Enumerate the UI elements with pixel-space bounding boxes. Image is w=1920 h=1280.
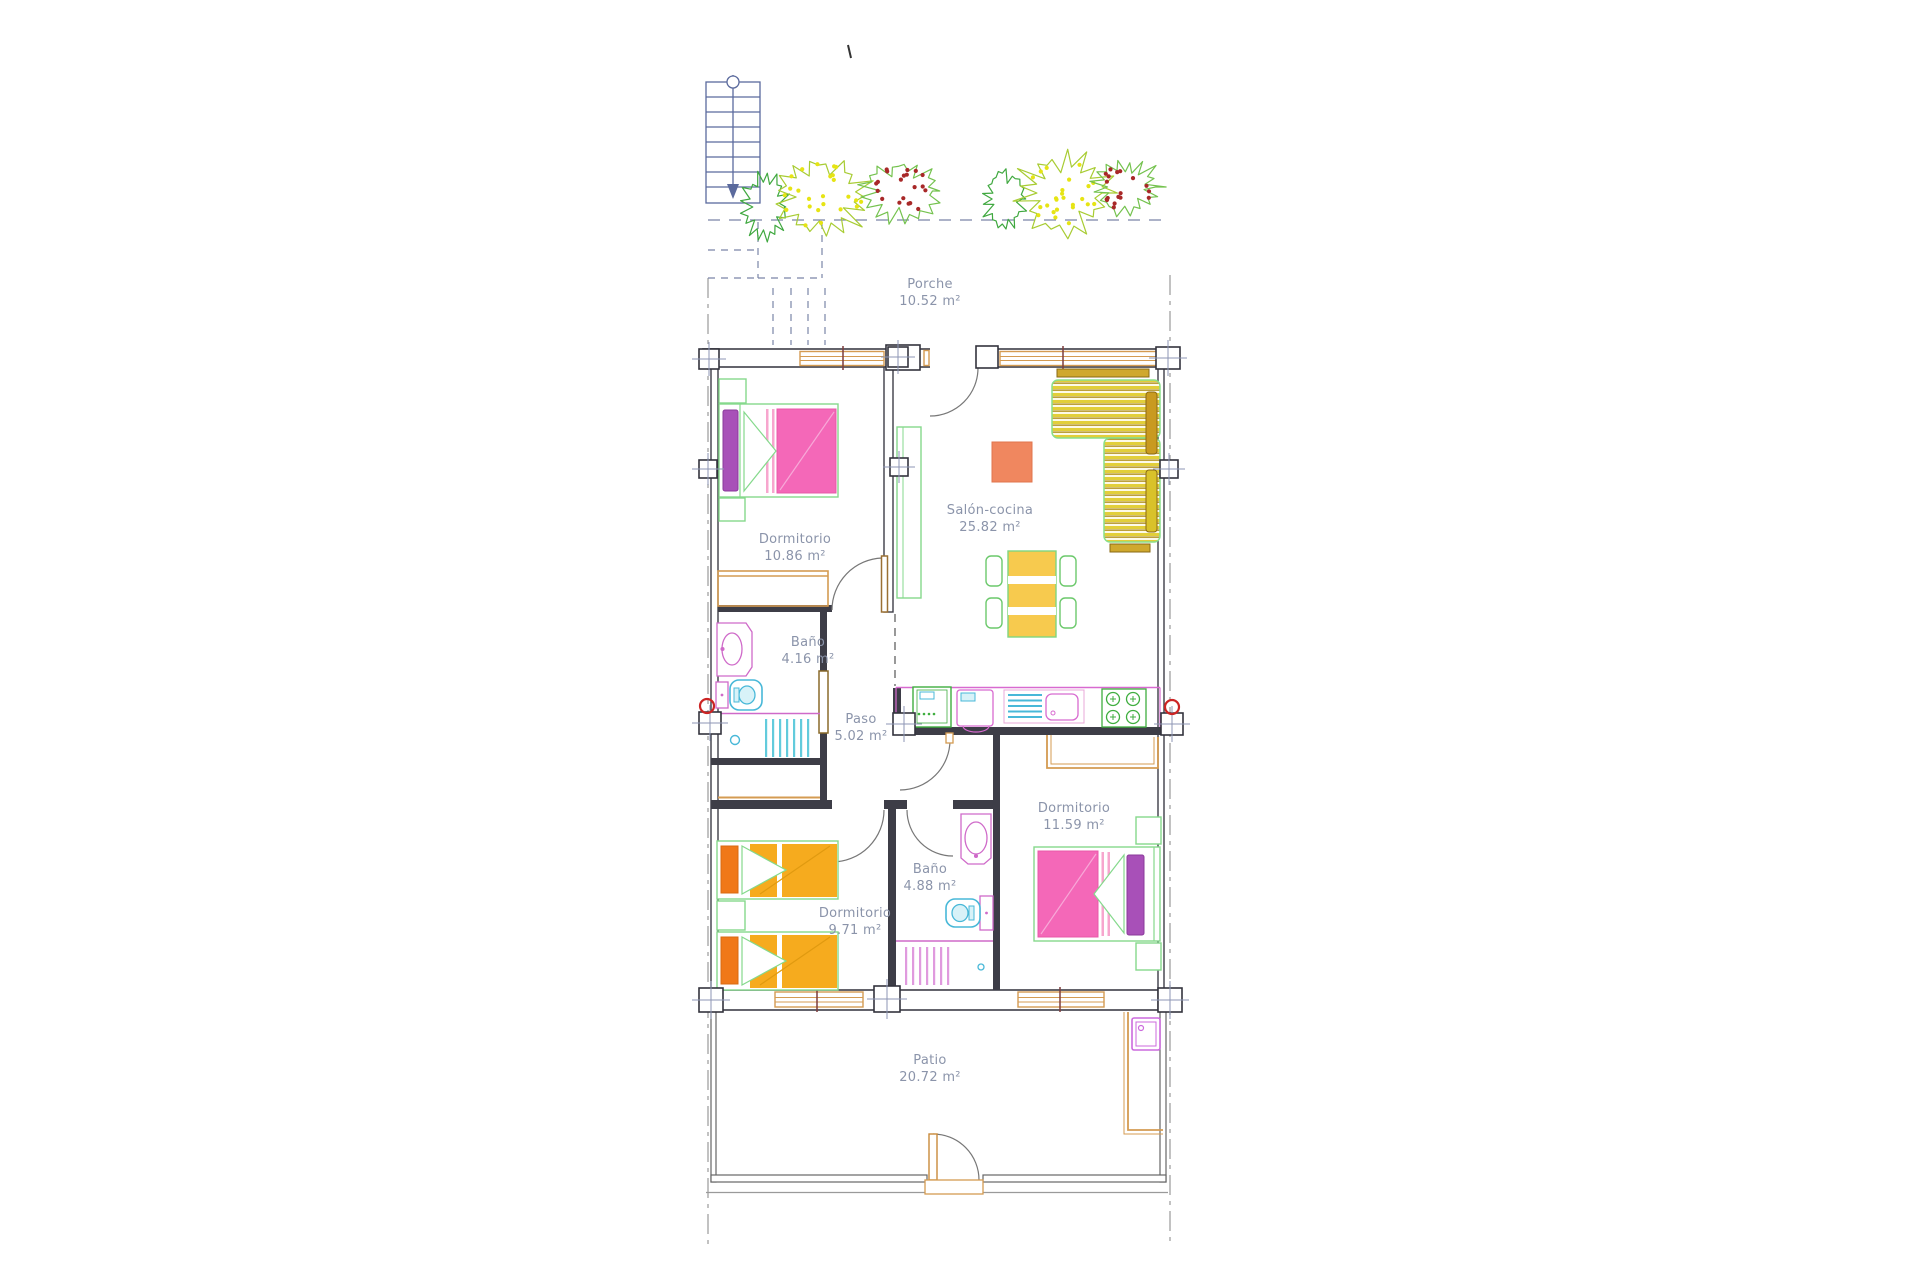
nightstand-symbol bbox=[719, 498, 745, 521]
room-label-bano1: Baño bbox=[791, 635, 825, 650]
wardrobe-symbol bbox=[897, 427, 921, 598]
washbasin-symbol bbox=[961, 814, 991, 864]
wardrobe-symbol bbox=[718, 571, 828, 606]
twin-bed-symbol bbox=[717, 841, 838, 899]
bedroom1-furniture bbox=[718, 379, 838, 606]
washer-symbol bbox=[957, 690, 993, 732]
floor-drain-symbol bbox=[978, 964, 984, 970]
room-area-bano2: 4.88 m² bbox=[903, 879, 956, 894]
room-area-dormitorio1: 10.86 m² bbox=[764, 549, 826, 564]
nightstand-symbol bbox=[1136, 817, 1161, 844]
room-label-salon: Salón-cocina bbox=[947, 503, 1033, 518]
window-top-right bbox=[1000, 352, 1158, 366]
nightstand-symbol bbox=[1136, 943, 1161, 970]
bathroom2-fixtures bbox=[896, 814, 993, 985]
sink-symbol bbox=[1046, 694, 1078, 720]
sofa-symbol bbox=[1052, 369, 1160, 552]
double-bed-symbol bbox=[1034, 847, 1160, 941]
double-bed-symbol bbox=[719, 404, 838, 497]
fridge-symbol bbox=[913, 687, 951, 727]
kitchen-counter bbox=[896, 687, 1160, 732]
washbasin-symbol bbox=[717, 623, 752, 676]
coffee-table-symbol bbox=[992, 442, 1032, 482]
entry-door-arc bbox=[930, 368, 978, 416]
room-label-dormitorio1: Dormitorio bbox=[759, 532, 831, 547]
door-jamb bbox=[924, 351, 929, 366]
bedroom3-door bbox=[832, 810, 884, 862]
stray-mark bbox=[848, 45, 851, 58]
room-area-patio: 20.72 m² bbox=[899, 1070, 961, 1085]
room-label-dormitorio2: Dormitorio bbox=[1038, 801, 1110, 816]
patio-fixtures bbox=[1124, 1012, 1163, 1134]
window-bottom-right bbox=[1018, 992, 1104, 1007]
room-area-dormitorio3: 9.71 m² bbox=[828, 923, 881, 938]
nightstand-symbol bbox=[719, 379, 746, 403]
patio-door bbox=[925, 1134, 983, 1194]
room-label-porche: Porche bbox=[907, 277, 953, 292]
twin-bed-symbol bbox=[717, 932, 838, 990]
vegetation bbox=[741, 149, 1167, 242]
room-area-dormitorio2: 11.59 m² bbox=[1043, 818, 1105, 833]
bathroom2-door bbox=[907, 810, 953, 856]
salon-furniture bbox=[896, 369, 1160, 732]
room-label-paso: Paso bbox=[845, 712, 876, 727]
window-top-left bbox=[800, 352, 884, 366]
stairs-symbol bbox=[706, 75, 825, 345]
room-label-dormitorio3: Dormitorio bbox=[819, 906, 891, 921]
toilet-symbol bbox=[716, 680, 762, 710]
room-area-paso: 5.02 m² bbox=[834, 729, 887, 744]
nightstand-symbol bbox=[717, 901, 745, 930]
shower-symbol bbox=[763, 719, 812, 757]
room-area-porche: 10.52 m² bbox=[899, 294, 961, 309]
floor-drain-symbol bbox=[731, 736, 740, 745]
toilet-symbol bbox=[946, 896, 993, 930]
laundry-machine-symbol bbox=[1132, 1018, 1160, 1050]
room-label-bano2: Baño bbox=[913, 862, 947, 877]
room-label-patio: Patio bbox=[913, 1053, 946, 1068]
bedroom2-furniture bbox=[1034, 735, 1161, 970]
stove-symbol bbox=[1102, 689, 1146, 727]
dining-set-symbol bbox=[986, 551, 1076, 637]
shower-symbol bbox=[902, 947, 952, 985]
floor-plan-canvas: Porche 10.52 m² Dormitorio 10.86 m² Saló… bbox=[0, 0, 1920, 1280]
dish-rack-symbol bbox=[1008, 695, 1042, 717]
bathroom1-door bbox=[819, 671, 828, 733]
window-bottom-left bbox=[775, 992, 863, 1007]
closet-symbol bbox=[1047, 735, 1158, 768]
bedroom1-door bbox=[832, 556, 888, 612]
room-area-bano1: 4.16 m² bbox=[781, 652, 834, 667]
bedroom2-door bbox=[900, 733, 953, 790]
room-area-salon: 25.82 m² bbox=[959, 520, 1021, 535]
